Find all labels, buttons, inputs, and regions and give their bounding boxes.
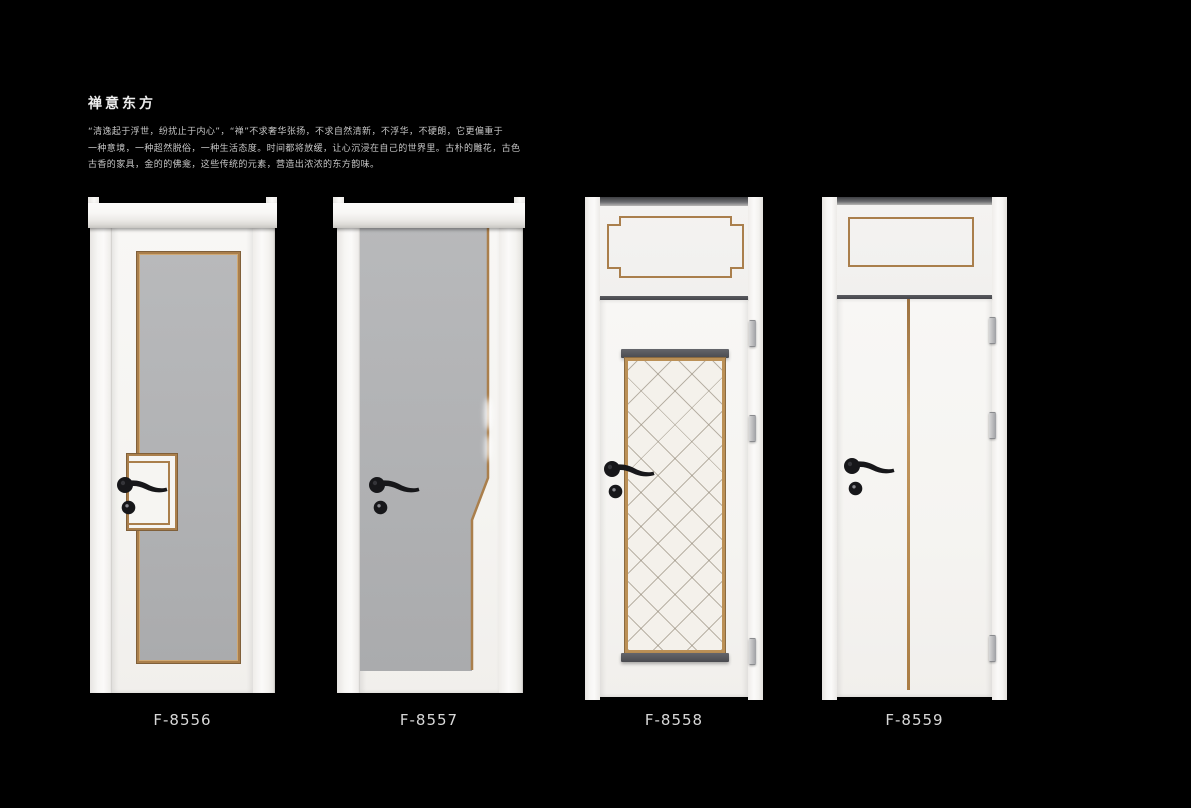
product-model-label: F-8559 <box>822 711 1007 729</box>
door-frame-stile-left <box>822 197 837 700</box>
door-handle <box>366 474 426 518</box>
door-hinge <box>749 415 756 442</box>
door-frame-stile-right <box>748 197 763 700</box>
door-jamb-left <box>90 228 112 693</box>
door-leaf <box>112 222 253 693</box>
lattice-glass-panel <box>625 358 725 653</box>
door-jamb-left <box>337 228 360 693</box>
product-door-f8556 <box>88 197 277 700</box>
door-lintel <box>333 203 525 228</box>
transom-top-reveal <box>600 197 748 206</box>
transom-top-reveal <box>837 197 992 205</box>
page-title: 禅意东方 <box>88 93 156 113</box>
transom-panel <box>837 205 992 295</box>
product-door-f8557 <box>333 197 525 700</box>
transom-gold-frame <box>848 217 974 267</box>
door-frame-stile-right <box>992 197 1007 700</box>
door-jamb-right <box>499 228 523 693</box>
door-leaf <box>360 222 503 693</box>
center-gold-inlay <box>907 299 910 690</box>
door-handle <box>601 458 661 502</box>
product-model-label: F-8558 <box>585 711 763 729</box>
door-leaf <box>600 300 748 697</box>
door-hinge <box>989 412 996 439</box>
door-leaf <box>837 299 992 697</box>
product-model-label: F-8557 <box>333 711 525 729</box>
door-lintel <box>88 203 277 228</box>
product-door-f8559 <box>822 197 1007 700</box>
door-handle <box>114 474 174 518</box>
glass-top-cap <box>621 349 729 358</box>
door-jamb-right <box>253 228 275 693</box>
product-model-label: F-8556 <box>88 711 277 729</box>
door-hinge <box>749 320 756 347</box>
door-hinge <box>749 638 756 665</box>
glass-bottom-cap <box>621 653 729 662</box>
door-frame-stile-left <box>585 197 600 700</box>
catalog-page: 禅意东方 “清逸起于浮世，纷扰止于内心”，“禅”不求奢华张扬，不求自然清新，不浮… <box>0 0 1191 808</box>
transom-stepped-gold-frame <box>600 206 748 296</box>
transom-panel <box>600 206 748 296</box>
product-door-f8558 <box>585 197 763 700</box>
door-hinge <box>989 317 996 344</box>
page-description: “清逸起于浮世，纷扰止于内心”，“禅”不求奢华张扬，不求自然清新，不浮华，不硬朗… <box>88 124 548 174</box>
door-handle <box>841 455 901 499</box>
door-hinge <box>989 635 996 662</box>
door-gray-panel-asymmetric <box>360 222 503 693</box>
